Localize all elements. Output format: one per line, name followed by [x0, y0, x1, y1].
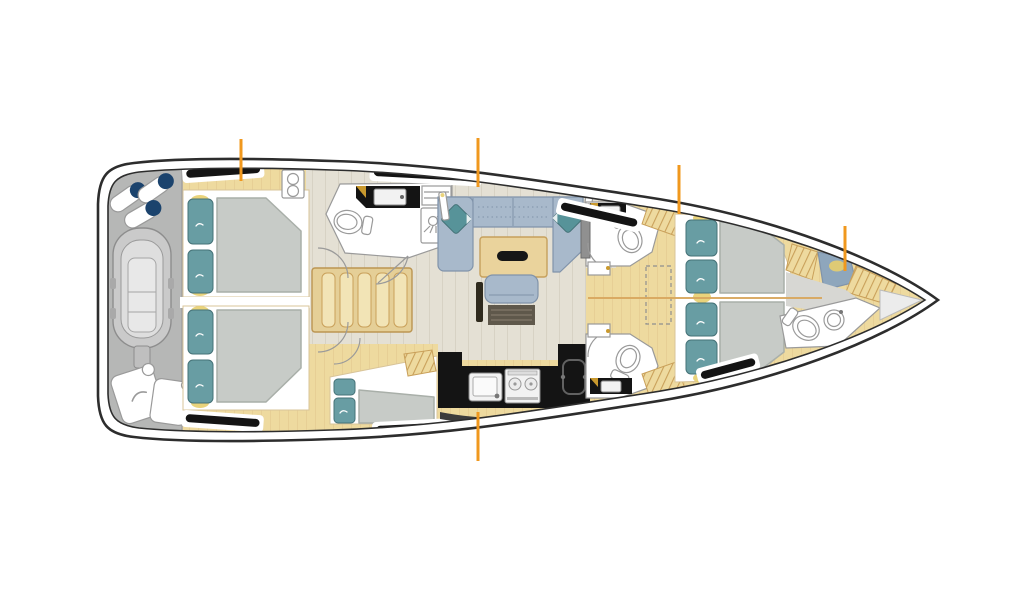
fridge-handle: [561, 375, 565, 379]
dinghy-handle: [110, 278, 116, 289]
washbasin: [601, 381, 621, 392]
chart-seat: [485, 275, 538, 303]
door-handle: [606, 266, 610, 270]
cabin-steps: [404, 350, 436, 376]
companionway-stairs: [312, 268, 412, 332]
dinghy-handle: [168, 278, 174, 289]
aft-starboard-cabin: [183, 306, 309, 410]
pillow: [188, 199, 213, 244]
yacht-floorplan-canvas: [0, 0, 1024, 600]
stove: [505, 369, 540, 403]
pillow: [188, 360, 213, 403]
pillow: [686, 260, 717, 293]
bow-washbasin: [824, 310, 844, 330]
table-handle: [497, 251, 528, 261]
counter-riser: [438, 352, 462, 368]
pillow: [686, 220, 717, 256]
pillow: [188, 250, 213, 293]
seat-cushion: [829, 261, 845, 272]
pillow: [334, 379, 355, 395]
pillow: [188, 310, 213, 354]
mast-post: [476, 282, 483, 322]
dinghy-handle: [168, 308, 174, 319]
door-handle: [606, 329, 610, 333]
faucet: [400, 195, 404, 199]
galley-sink: [469, 373, 502, 401]
pillow: [686, 303, 717, 336]
floorplan-svg: [0, 0, 1024, 600]
dinghy-handle: [110, 308, 116, 319]
interior: [104, 158, 942, 448]
